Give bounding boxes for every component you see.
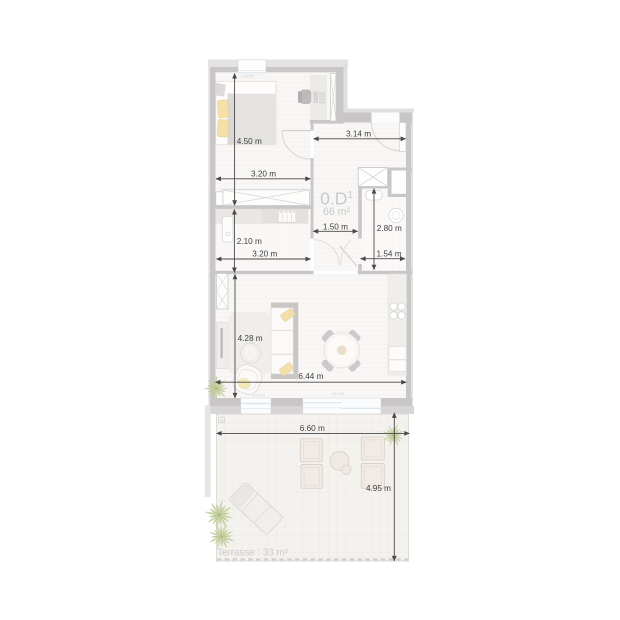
svg-text:3.20 m: 3.20 m xyxy=(251,170,276,179)
svg-text:1.54 m: 1.54 m xyxy=(376,250,401,259)
svg-text:6.60 m: 6.60 m xyxy=(300,424,325,433)
svg-text:240x120: 240x120 xyxy=(241,75,254,79)
svg-text:2.80 m: 2.80 m xyxy=(377,224,402,233)
svg-text:6.44 m: 6.44 m xyxy=(298,372,323,381)
svg-text:4.50 m: 4.50 m xyxy=(237,137,262,146)
svg-text:4.95 m: 4.95 m xyxy=(366,484,391,493)
svg-text:Terrasse : 33 m²: Terrasse : 33 m² xyxy=(217,548,289,559)
svg-text:HA 500: HA 500 xyxy=(253,394,265,398)
svg-text:HA 900: HA 900 xyxy=(332,392,344,396)
svg-text:2.10 m: 2.10 m xyxy=(237,237,262,246)
svg-text:66 m²: 66 m² xyxy=(323,206,351,218)
svg-text:4.28 m: 4.28 m xyxy=(238,334,263,343)
svg-text:ID: ID xyxy=(220,419,224,423)
svg-text:3.14 m: 3.14 m xyxy=(346,129,371,138)
svg-text:1.50 m: 1.50 m xyxy=(323,223,348,232)
svg-text:3.20 m: 3.20 m xyxy=(252,250,277,259)
